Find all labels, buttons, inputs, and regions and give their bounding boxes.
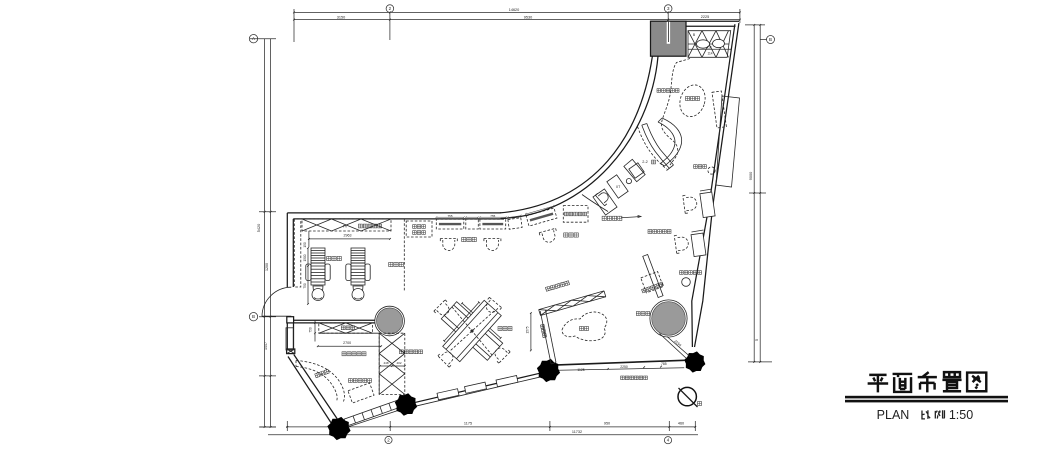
- svg-text:B: B: [252, 314, 255, 319]
- svg-text:TV: TV: [343, 225, 348, 229]
- svg-text:1500: 1500: [303, 254, 307, 261]
- svg-text:1447: 1447: [264, 342, 268, 350]
- svg-text:9000: 9000: [749, 172, 753, 180]
- svg-text:1125: 1125: [577, 368, 584, 372]
- svg-text:1200: 1200: [265, 263, 269, 271]
- svg-text:950: 950: [604, 421, 610, 425]
- svg-text:785: 785: [661, 362, 667, 366]
- svg-text:402: 402: [396, 361, 401, 365]
- svg-text:150: 150: [303, 242, 307, 248]
- svg-text:B: B: [769, 37, 772, 42]
- svg-text:2-2: 2-2: [642, 160, 648, 164]
- svg-text:14620: 14620: [509, 8, 520, 12]
- svg-text:1575: 1575: [526, 326, 530, 333]
- svg-text:9530: 9530: [524, 15, 532, 19]
- svg-text:5420: 5420: [257, 224, 261, 232]
- svg-text:114: 114: [707, 52, 712, 56]
- svg-text:A: A: [252, 36, 255, 41]
- svg-text:PLAN: PLAN: [877, 408, 910, 422]
- svg-text:1175: 1175: [464, 421, 472, 425]
- svg-text:410: 410: [706, 46, 712, 50]
- svg-text:2225: 2225: [701, 15, 709, 19]
- svg-text:755: 755: [447, 214, 452, 218]
- svg-text:460: 460: [678, 421, 684, 425]
- svg-text:2963: 2963: [344, 234, 352, 238]
- svg-text:1:50: 1:50: [949, 408, 973, 422]
- svg-text:5: 5: [755, 339, 759, 341]
- svg-text:750: 750: [303, 283, 307, 289]
- svg-text:755: 755: [490, 214, 495, 218]
- svg-text:2250: 2250: [620, 365, 628, 369]
- svg-text:2700: 2700: [343, 341, 351, 345]
- svg-text:448: 448: [383, 361, 388, 365]
- svg-text:3150: 3150: [337, 15, 345, 19]
- svg-text:750: 750: [309, 327, 313, 333]
- svg-text:XT: XT: [616, 185, 620, 189]
- svg-text:11732: 11732: [572, 430, 582, 434]
